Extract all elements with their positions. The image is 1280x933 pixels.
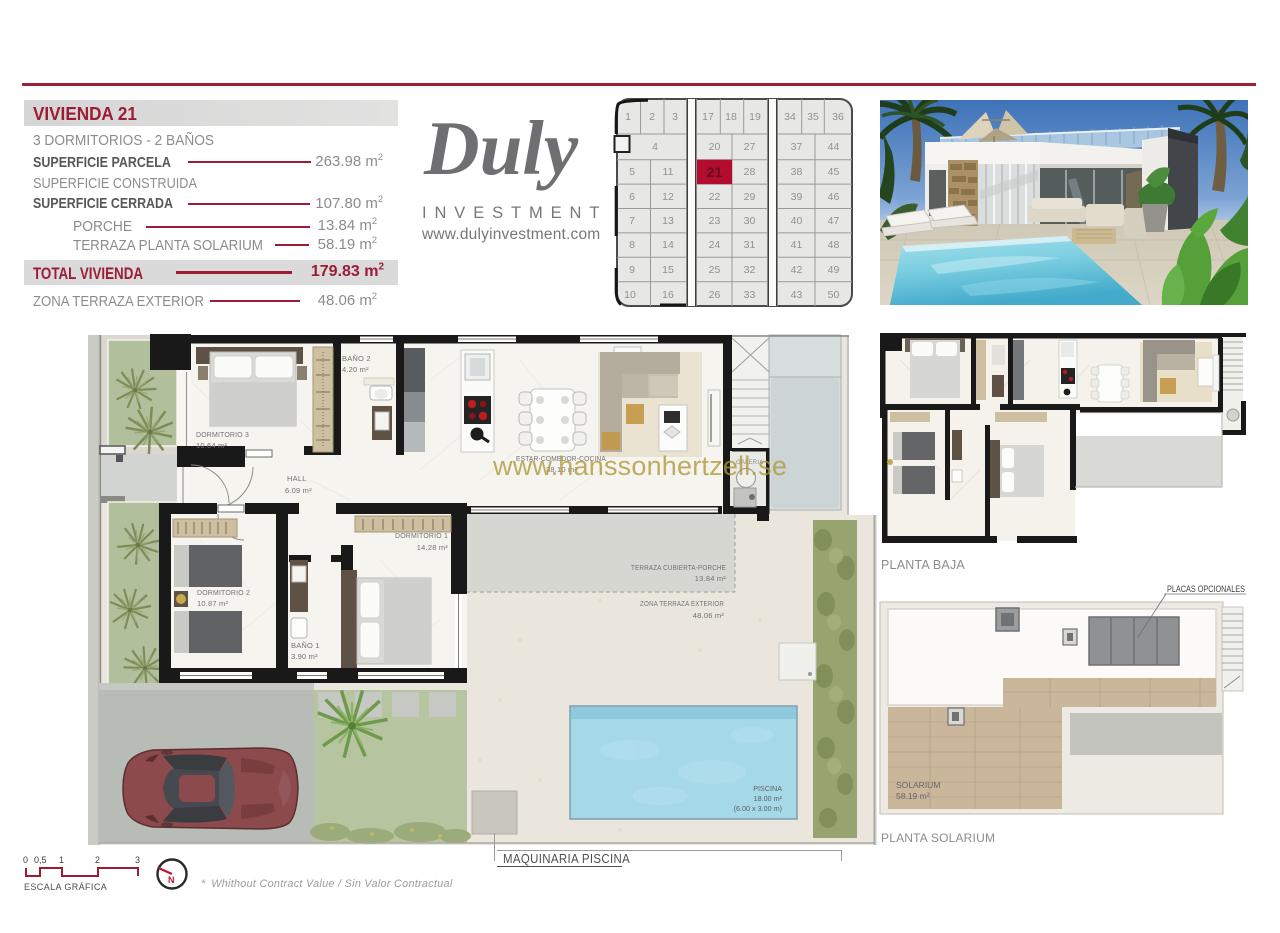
svg-text:6.09 m²: 6.09 m² xyxy=(285,486,312,495)
svg-text:6: 6 xyxy=(629,191,635,203)
svg-text:44: 44 xyxy=(828,141,840,153)
svg-text:50: 50 xyxy=(828,289,840,301)
svg-text:39: 39 xyxy=(791,191,803,203)
svg-text:35: 35 xyxy=(807,111,819,123)
svg-text:45: 45 xyxy=(828,166,840,178)
svg-text:30: 30 xyxy=(744,215,756,227)
svg-text:32: 32 xyxy=(744,264,756,276)
svg-text:2: 2 xyxy=(649,111,655,123)
svg-text:14.28 m²: 14.28 m² xyxy=(417,543,448,552)
svg-text:7: 7 xyxy=(629,215,635,227)
svg-text:18: 18 xyxy=(725,111,737,123)
svg-text:42: 42 xyxy=(791,264,803,276)
svg-text:46: 46 xyxy=(828,191,840,203)
svg-text:1: 1 xyxy=(59,855,64,865)
svg-text:26: 26 xyxy=(709,289,721,301)
svg-text:31: 31 xyxy=(744,239,756,251)
svg-text:10.87 m²: 10.87 m² xyxy=(197,599,228,608)
svg-text:10.64 m²: 10.64 m² xyxy=(196,441,227,450)
svg-text:11: 11 xyxy=(663,166,674,178)
svg-text:3: 3 xyxy=(135,855,140,865)
svg-text:4: 4 xyxy=(652,141,658,153)
svg-text:40: 40 xyxy=(791,215,803,227)
svg-text:19: 19 xyxy=(749,111,761,123)
svg-text:58.19 m²: 58.19 m² xyxy=(896,791,930,801)
svg-text:37: 37 xyxy=(791,141,803,153)
svg-text:DORMITORIO 3: DORMITORIO 3 xyxy=(196,430,249,439)
svg-text:22: 22 xyxy=(709,191,721,203)
svg-text:23: 23 xyxy=(709,215,721,227)
svg-text:4.20 m²: 4.20 m² xyxy=(342,365,369,374)
svg-text:(6.00 x 3.00 m): (6.00 x 3.00 m) xyxy=(734,804,782,813)
svg-text:24: 24 xyxy=(709,239,721,251)
svg-text:DORMITORIO 2: DORMITORIO 2 xyxy=(197,588,250,597)
svg-text:12: 12 xyxy=(662,191,674,203)
svg-text:27: 27 xyxy=(744,141,756,153)
svg-text:3: 3 xyxy=(672,111,678,123)
svg-text:1: 1 xyxy=(625,111,631,123)
svg-text:36: 36 xyxy=(832,111,844,123)
svg-text:14: 14 xyxy=(662,239,674,251)
svg-text:41: 41 xyxy=(791,239,803,251)
svg-text:21: 21 xyxy=(707,164,723,180)
svg-text:49: 49 xyxy=(828,264,840,276)
svg-text:34: 34 xyxy=(784,111,796,123)
svg-text:DORMITORIO 1: DORMITORIO 1 xyxy=(395,531,448,540)
svg-text:8: 8 xyxy=(629,239,635,251)
svg-text:29: 29 xyxy=(744,191,756,203)
svg-text:0: 0 xyxy=(23,855,28,865)
svg-text:10: 10 xyxy=(624,289,636,301)
svg-text:16: 16 xyxy=(662,289,674,301)
svg-text:0,5: 0,5 xyxy=(34,855,47,865)
svg-text:33: 33 xyxy=(744,289,756,301)
svg-text:3.90 m²: 3.90 m² xyxy=(291,652,318,661)
svg-text:5: 5 xyxy=(629,166,635,178)
svg-text:48: 48 xyxy=(828,239,840,251)
svg-text:38: 38 xyxy=(791,166,803,178)
svg-text:28: 28 xyxy=(744,166,756,178)
svg-text:47: 47 xyxy=(828,215,840,227)
svg-text:ZONA TERRAZA EXTERIOR: ZONA TERRAZA EXTERIOR xyxy=(640,599,724,608)
svg-text:PLACAS OPCIONALES: PLACAS OPCIONALES xyxy=(1167,584,1245,594)
svg-text:13: 13 xyxy=(662,215,674,227)
svg-text:18.00 m²: 18.00 m² xyxy=(754,794,783,803)
svg-text:N: N xyxy=(168,875,175,885)
svg-text:BAÑO 2: BAÑO 2 xyxy=(342,354,371,363)
svg-text:13.84 m²: 13.84 m² xyxy=(695,574,726,583)
svg-text:2: 2 xyxy=(95,855,100,865)
svg-text:SOLARIUM: SOLARIUM xyxy=(896,780,940,790)
svg-text:15: 15 xyxy=(662,264,674,276)
svg-text:BAÑO 1: BAÑO 1 xyxy=(291,641,320,650)
svg-text:HALL: HALL xyxy=(287,474,307,483)
svg-text:PISCINA: PISCINA xyxy=(753,784,782,793)
svg-text:TERRAZA CUBIERTA-PORCHE: TERRAZA CUBIERTA-PORCHE xyxy=(631,563,726,572)
svg-text:25: 25 xyxy=(709,264,721,276)
svg-text:9: 9 xyxy=(629,264,635,276)
svg-text:48.06 m²: 48.06 m² xyxy=(693,611,724,620)
svg-text:20: 20 xyxy=(709,141,721,153)
svg-text:43: 43 xyxy=(791,289,803,301)
svg-text:17: 17 xyxy=(702,111,714,123)
